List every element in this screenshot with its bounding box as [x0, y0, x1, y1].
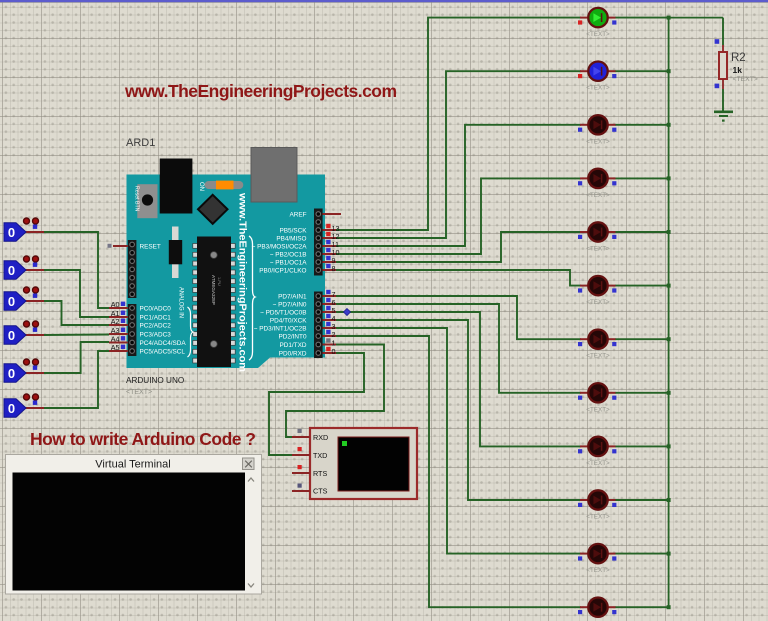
svg-text:www.TheEngineeringProjects.com: www.TheEngineeringProjects.com: [124, 81, 397, 101]
svg-text:8: 8: [332, 264, 336, 273]
svg-text:~ PD3/INT1/OC2B: ~ PD3/INT1/OC2B: [254, 326, 307, 333]
svg-text:CTS: CTS: [313, 487, 328, 496]
svg-text:PD0/RXD: PD0/RXD: [279, 351, 307, 358]
svg-text:0: 0: [332, 347, 336, 356]
svg-text:ON: ON: [198, 182, 204, 191]
svg-text:PD1/TXD: PD1/TXD: [280, 342, 307, 349]
svg-text:PD7/AIN1: PD7/AIN1: [278, 294, 307, 301]
svg-text:Virtual Terminal: Virtual Terminal: [95, 459, 170, 471]
svg-text:A5: A5: [111, 343, 120, 352]
svg-text:~ PB2/OC1B: ~ PB2/OC1B: [270, 252, 307, 259]
svg-text:PB5/SCK: PB5/SCK: [280, 228, 308, 235]
svg-text:www.TheEngineeringProjects.com: www.TheEngineeringProjects.com: [237, 192, 248, 372]
svg-text:~ PD7/AIN0: ~ PD7/AIN0: [273, 302, 307, 309]
svg-text:RTS: RTS: [313, 469, 327, 478]
svg-text:~ PB3/MOSI/OC2A: ~ PB3/MOSI/OC2A: [252, 244, 308, 251]
svg-text:PD4/T0/XCK: PD4/T0/XCK: [270, 318, 307, 325]
svg-text:ARDUINO UNO: ARDUINO UNO: [126, 376, 184, 385]
svg-text:Reset BTN: Reset BTN: [134, 186, 140, 212]
svg-text:AREF: AREF: [289, 212, 306, 219]
svg-text:ATMEGA328P: ATMEGA328P: [211, 275, 216, 305]
svg-text:ANALOG IN: ANALOG IN: [178, 287, 184, 318]
svg-text:~ PB1/OC1A: ~ PB1/OC1A: [270, 260, 308, 267]
svg-text:A0: A0: [111, 300, 120, 309]
svg-text:TXD: TXD: [313, 451, 327, 460]
svg-text:RXD: RXD: [313, 433, 328, 442]
svg-text:PB0/ICP1/CLKO: PB0/ICP1/CLKO: [259, 268, 306, 275]
svg-text:PC0/ADC0: PC0/ADC0: [140, 306, 172, 313]
svg-text:<TEXT>: <TEXT>: [126, 389, 152, 396]
svg-text:~ PD5/T1/OC0B: ~ PD5/T1/OC0B: [260, 310, 306, 317]
svg-text:PC5/ADC5/SCL: PC5/ADC5/SCL: [140, 349, 186, 356]
svg-text:PC4/ADC4/SDA: PC4/ADC4/SDA: [140, 340, 187, 347]
svg-text:1-PU: 1-PU: [217, 277, 221, 286]
svg-text:A2: A2: [111, 317, 120, 326]
svg-text:PB4/MISO: PB4/MISO: [276, 236, 306, 243]
svg-text:RESET: RESET: [140, 244, 161, 251]
svg-text:ARD1: ARD1: [126, 137, 155, 149]
svg-text:PD2/INT0: PD2/INT0: [278, 334, 307, 341]
svg-text:PC1/ADC1: PC1/ADC1: [140, 315, 172, 322]
svg-text:PC2/ADC2: PC2/ADC2: [140, 323, 172, 330]
svg-text:How to write Arduino Code ?: How to write Arduino Code ?: [30, 429, 256, 449]
svg-text:PC3/ADC3: PC3/ADC3: [140, 332, 172, 339]
